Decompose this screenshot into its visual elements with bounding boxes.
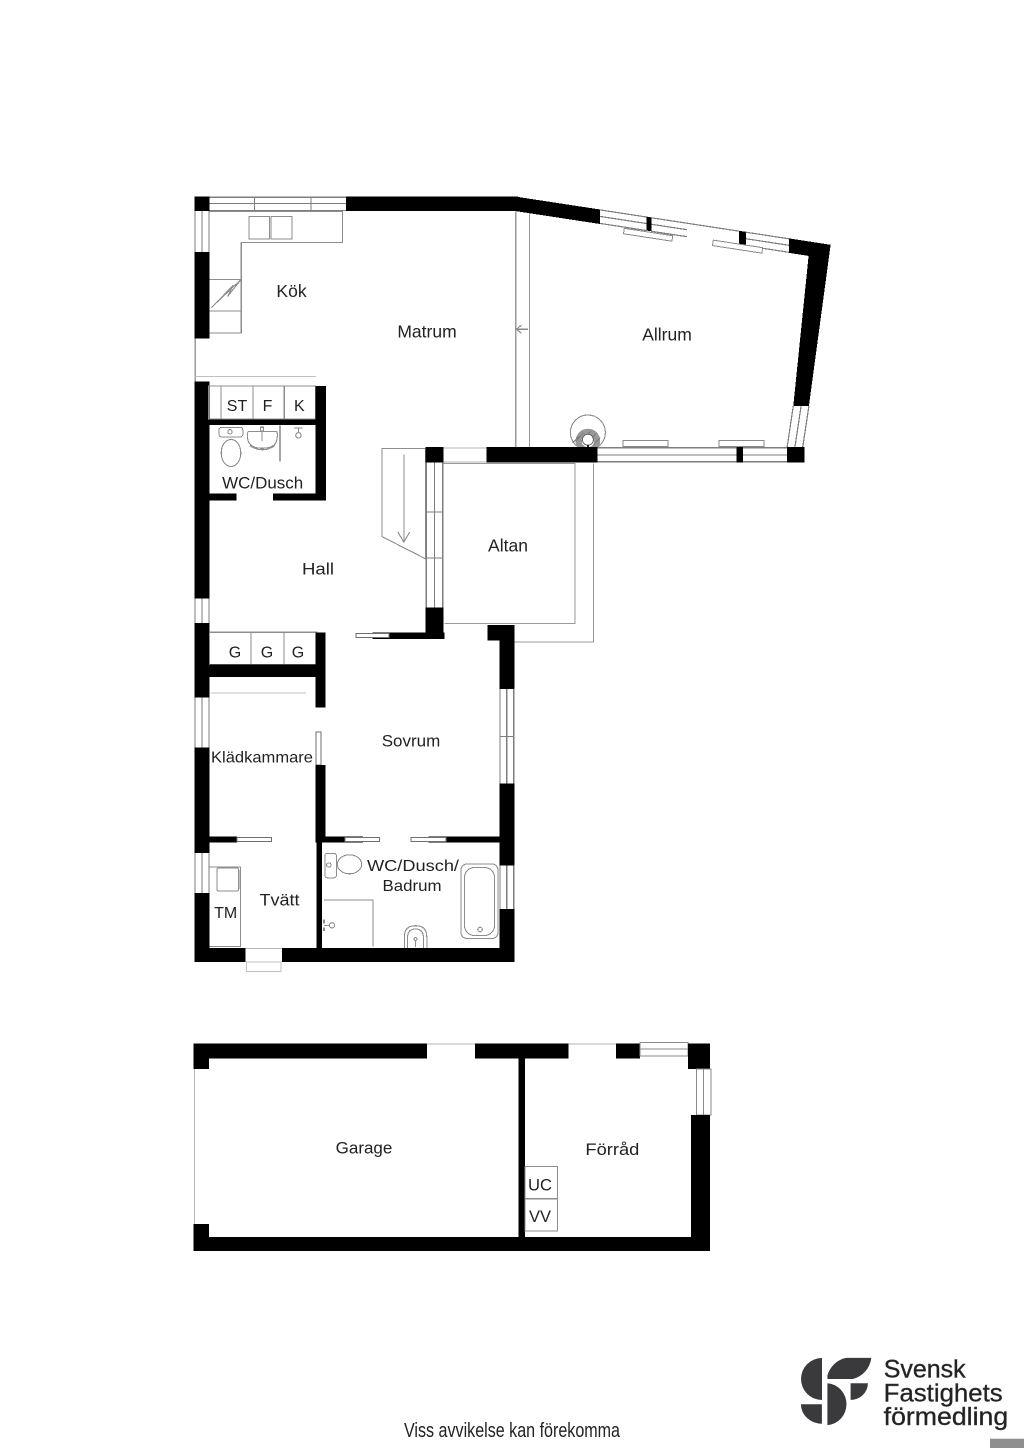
svg-text:G: G bbox=[292, 645, 304, 662]
svg-text:Tvätt: Tvätt bbox=[260, 891, 300, 910]
svg-text:Allrum: Allrum bbox=[642, 325, 692, 345]
svg-text:TM: TM bbox=[214, 905, 237, 922]
svg-text:Förråd: Förråd bbox=[585, 1140, 639, 1159]
svg-text:Viss avvikelse kan förekomma: Viss avvikelse kan förekomma bbox=[404, 1420, 621, 1442]
svg-text:förmedling: förmedling bbox=[884, 1403, 1009, 1431]
svg-text:G: G bbox=[261, 645, 273, 662]
svg-text:K: K bbox=[294, 398, 305, 415]
svg-text:UC: UC bbox=[528, 1177, 552, 1195]
svg-text:G: G bbox=[229, 645, 241, 662]
svg-text:Matrum: Matrum bbox=[397, 322, 456, 342]
svg-text:WC/Dusch/: WC/Dusch/ bbox=[367, 858, 460, 875]
svg-text:Badrum: Badrum bbox=[383, 878, 442, 895]
svg-text:WC/Dusch: WC/Dusch bbox=[222, 475, 303, 493]
svg-text:Hall: Hall bbox=[302, 561, 334, 579]
svg-text:Klädkammare: Klädkammare bbox=[211, 750, 313, 767]
svg-text:VV: VV bbox=[529, 1208, 551, 1226]
svg-text:Garage: Garage bbox=[336, 1139, 393, 1158]
svg-text:Kök: Kök bbox=[276, 281, 306, 301]
svg-text:Altan: Altan bbox=[488, 536, 528, 556]
svg-text:Sovrum: Sovrum bbox=[382, 732, 441, 751]
svg-text:ST: ST bbox=[227, 398, 248, 415]
svg-text:F: F bbox=[263, 398, 273, 415]
